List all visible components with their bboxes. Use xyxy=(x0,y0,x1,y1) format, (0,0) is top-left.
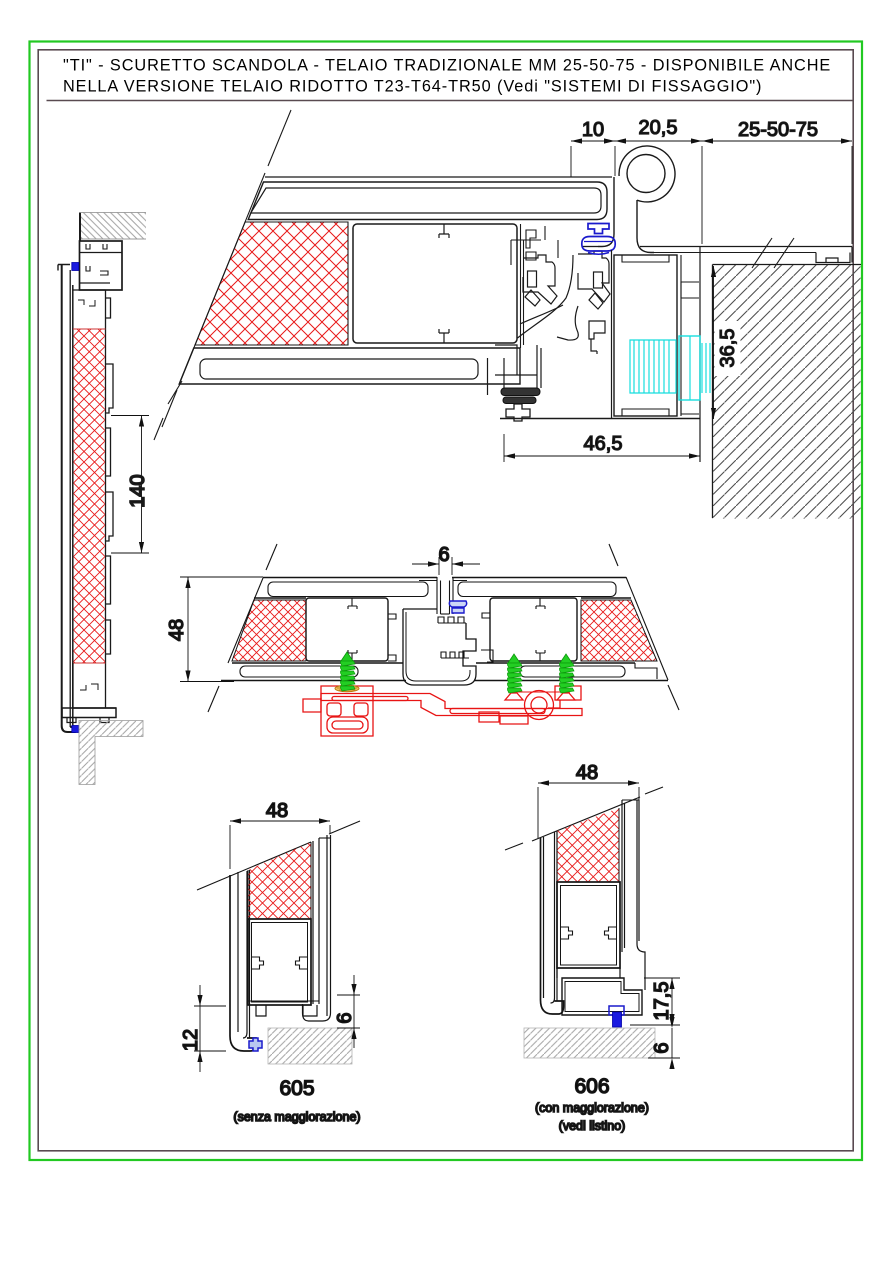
svg-text:12: 12 xyxy=(180,1029,202,1051)
svg-text:6: 6 xyxy=(438,544,449,566)
svg-text:10: 10 xyxy=(582,119,604,141)
svg-text:NELLA VERSIONE TELAIO RIDOTTO: NELLA VERSIONE TELAIO RIDOTTO T23-T64-TR… xyxy=(63,78,762,96)
svg-text:6: 6 xyxy=(651,1042,673,1053)
svg-text:48: 48 xyxy=(576,762,598,784)
svg-text:48: 48 xyxy=(166,619,188,641)
svg-text:17,5: 17,5 xyxy=(651,982,673,1021)
svg-text:606: 606 xyxy=(574,1075,609,1098)
svg-text:36,5: 36,5 xyxy=(717,329,739,368)
svg-text:6: 6 xyxy=(334,1012,356,1023)
svg-text:(senza maggiorazione): (senza maggiorazione) xyxy=(233,1110,360,1124)
svg-text:605: 605 xyxy=(279,1077,314,1100)
svg-text:25-50-75: 25-50-75 xyxy=(738,119,818,141)
svg-text:46,5: 46,5 xyxy=(584,433,623,455)
svg-text:140: 140 xyxy=(127,474,149,507)
svg-text:48: 48 xyxy=(266,800,288,822)
svg-text:20,5: 20,5 xyxy=(639,117,678,139)
svg-text:(vedi listino): (vedi listino) xyxy=(559,1119,626,1133)
svg-text:"TI" - SCURETTO SCANDOLA - TEL: "TI" - SCURETTO SCANDOLA - TELAIO TRADIZ… xyxy=(63,57,831,75)
svg-text:(con maggiorazione): (con maggiorazione) xyxy=(535,1101,649,1115)
